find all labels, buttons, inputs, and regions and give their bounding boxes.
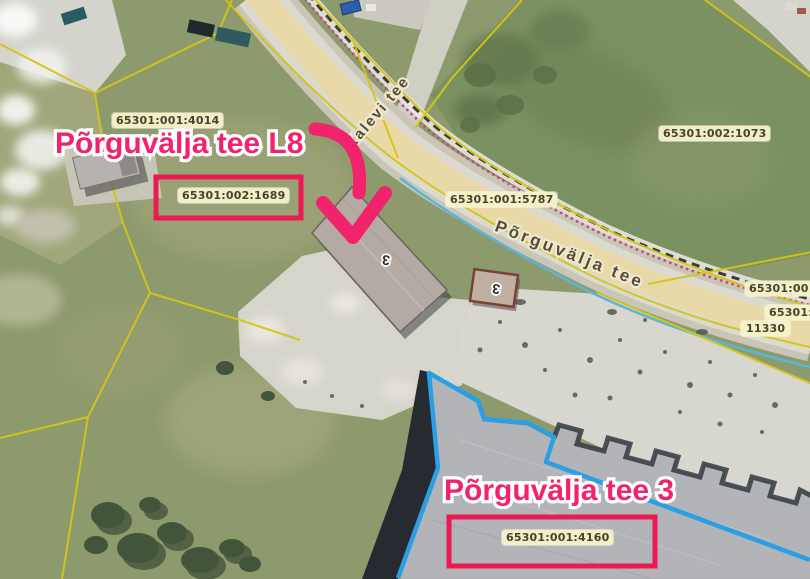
annotation-neighbor-parcel: Põrguvälja tee 3 [444, 474, 674, 507]
parcel-label-5787: 65301:001:5787 [446, 192, 557, 207]
map-canvas: Põrguvälja tee Kalevi tee 3 3 Põrguvälja… [0, 0, 810, 579]
parcel-label-1689: 65301:002:1689 [178, 188, 289, 203]
aerial-map-viewport: Põrguvälja tee Kalevi tee 3 3 Põrguvälja… [0, 0, 810, 579]
parcel-label-1073: 65301:002:1073 [659, 126, 770, 141]
parcel-label-4160: 65301:001:4160 [502, 530, 613, 545]
annotation-target-parcel: Põrguvälja tee L8 [55, 127, 303, 160]
parcel-label-edge-bottom: 65301:1 [765, 305, 810, 320]
road-number-label: 11330 [741, 321, 790, 336]
parcel-label-4014: 65301:001:4014 [112, 113, 223, 128]
parcel-label-edge-top: 65301:00 [745, 281, 810, 296]
